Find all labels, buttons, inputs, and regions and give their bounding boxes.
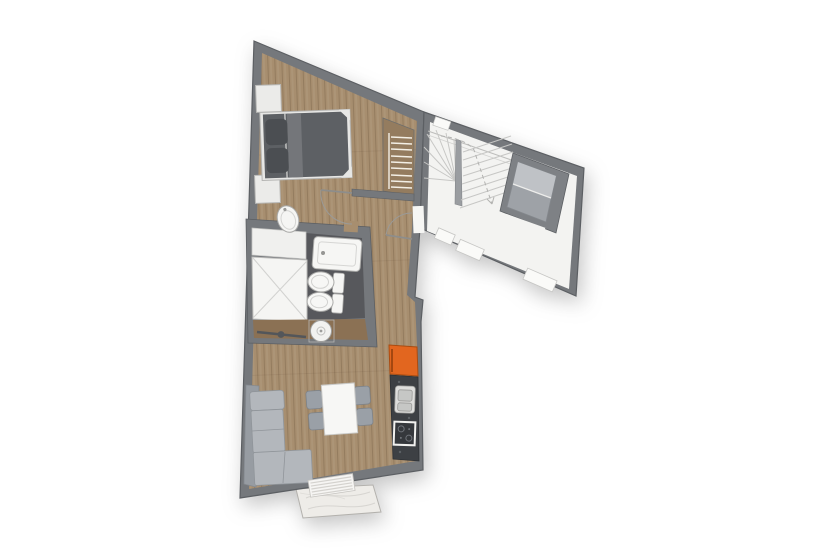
dining-table	[321, 383, 357, 435]
fridge	[389, 345, 418, 376]
cooktop	[394, 422, 416, 446]
counter-speckle	[408, 417, 410, 419]
hanger	[391, 168, 412, 169]
sofa-arm-cushion	[250, 390, 285, 411]
hanger	[391, 149, 412, 150]
hanger	[391, 143, 412, 144]
hanger	[391, 181, 412, 182]
washbasin-counter	[312, 236, 362, 271]
counter-speckle	[398, 381, 400, 383]
floorplan-svg	[0, 0, 820, 560]
kitchen-sink	[395, 386, 416, 414]
hanger	[391, 187, 412, 188]
hanger	[391, 175, 412, 176]
dining-chair	[353, 386, 370, 405]
dining-chair	[306, 390, 323, 409]
counter-speckle	[399, 451, 401, 453]
dining-chair	[308, 412, 325, 430]
sink-basin	[398, 390, 412, 401]
entrance-opening	[413, 206, 425, 233]
toilet	[307, 271, 344, 293]
washbasin	[312, 236, 362, 271]
pillow	[266, 148, 289, 174]
building-plan	[240, 41, 584, 518]
cooktop-body	[394, 422, 416, 446]
bathroom-door-opening	[344, 221, 359, 233]
double-bed	[260, 109, 352, 180]
sink-drainer	[398, 403, 412, 411]
bathroom-vanity	[252, 228, 306, 259]
washing-machine-dot	[320, 330, 323, 333]
wardrobe	[383, 118, 414, 196]
console-knob	[278, 331, 285, 338]
hanger	[391, 162, 412, 163]
stair-divider-wall	[455, 139, 462, 206]
floorplan-image	[0, 0, 820, 560]
pillow	[265, 119, 288, 146]
kitchen	[389, 345, 419, 461]
hanger	[391, 137, 412, 138]
bathroom	[246, 219, 377, 347]
dining-chair	[356, 408, 373, 426]
bed-fold-band	[287, 113, 303, 177]
hanger	[391, 156, 412, 157]
nightstand	[256, 85, 282, 113]
